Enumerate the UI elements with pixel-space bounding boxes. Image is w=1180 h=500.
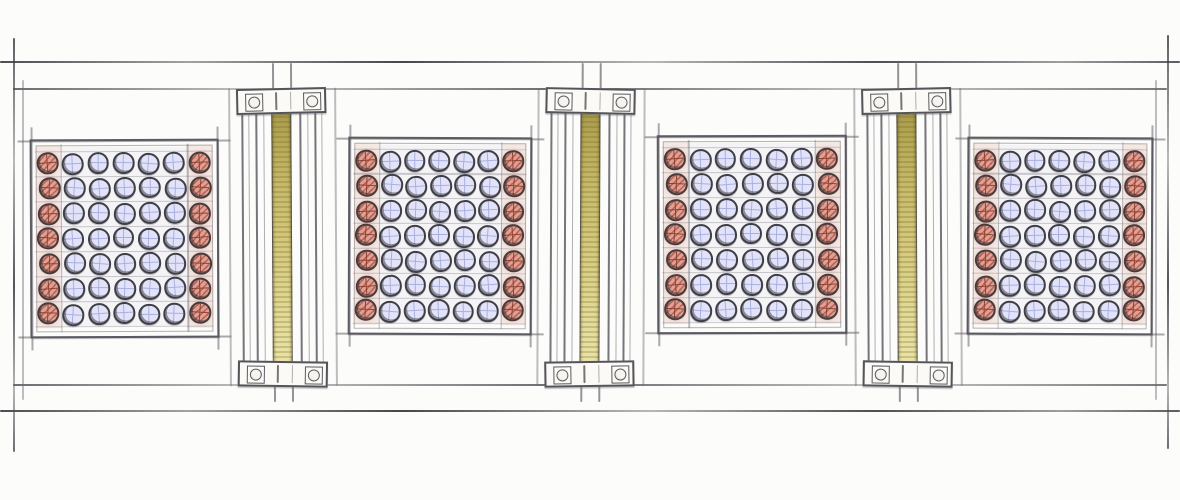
- elevation-sketch: [0, 0, 1180, 500]
- porthole-blue: [1075, 175, 1097, 197]
- porthole-blue: [792, 174, 814, 196]
- plate-center-line: [917, 365, 919, 383]
- porthole-blue: [766, 299, 788, 321]
- flute-line: [615, 96, 618, 381]
- porthole-blue: [690, 199, 712, 221]
- flute-line: [241, 96, 244, 381]
- brass-strip: [271, 100, 293, 378]
- flute-line: [629, 96, 632, 381]
- porthole-blue: [715, 197, 737, 219]
- porthole-red: [664, 222, 687, 245]
- panel-3: [657, 135, 848, 334]
- column-stub-line: [290, 63, 292, 91]
- porthole-red: [665, 173, 687, 195]
- plate-center-line: [277, 365, 279, 383]
- flute-line: [888, 96, 891, 381]
- porthole-blue: [428, 299, 450, 321]
- flute-line: [924, 96, 927, 381]
- porthole-blue: [114, 252, 137, 275]
- porthole-blue: [138, 277, 161, 300]
- porthole-blue: [1099, 251, 1121, 273]
- flute-line: [549, 96, 552, 381]
- porthole-red: [817, 172, 840, 195]
- column-stub-line: [292, 385, 294, 402]
- plate-center-line: [275, 92, 277, 110]
- frame-overshoot-top: [645, 136, 859, 138]
- porthole-blue: [63, 176, 86, 199]
- flute-line: [321, 96, 324, 381]
- frame-overshoot-left: [968, 125, 970, 347]
- column-stub-line: [897, 63, 899, 91]
- porthole-blue: [998, 300, 1021, 323]
- porthole-red: [974, 149, 997, 172]
- frame-overshoot-bottom: [18, 336, 231, 338]
- column-1: [221, 58, 343, 409]
- porthole-red: [355, 275, 378, 298]
- panel-1: [30, 139, 220, 339]
- porthole-red: [1123, 276, 1145, 298]
- rivet-plate: [303, 92, 321, 110]
- porthole-blue: [1073, 301, 1095, 323]
- porthole-blue: [1098, 199, 1120, 221]
- porthole-blue: [138, 303, 160, 325]
- porthole-red: [975, 174, 997, 196]
- porthole-red: [818, 248, 840, 270]
- porthole-blue: [429, 249, 452, 272]
- rivet-plate: [872, 365, 890, 383]
- porthole-blue: [1023, 299, 1046, 322]
- porthole-blue: [139, 177, 161, 199]
- porthole-blue: [428, 200, 451, 223]
- frame-overshoot-left: [349, 125, 351, 347]
- porthole-blue: [138, 228, 160, 250]
- bay-edge-line: [959, 88, 963, 386]
- rivet-plate: [612, 93, 630, 111]
- porthole-blue: [791, 197, 813, 219]
- plate-center-line: [584, 92, 586, 110]
- flute-line: [932, 96, 935, 381]
- porthole-blue: [452, 225, 474, 247]
- rivet-circle: [873, 96, 886, 109]
- porthole-blue: [1049, 249, 1072, 272]
- cap-plate: [545, 87, 636, 115]
- porthole-red: [189, 203, 211, 225]
- column-stub-line: [917, 385, 919, 402]
- porthole-red: [816, 147, 838, 169]
- bay-edge-line: [536, 88, 539, 386]
- porthole-red: [1123, 201, 1145, 223]
- porthole-red: [37, 203, 59, 225]
- porthole-blue: [114, 177, 136, 199]
- porthole-blue: [689, 299, 712, 322]
- column-stub-line: [274, 385, 276, 402]
- porthole-blue: [1073, 274, 1096, 297]
- porthole-blue: [741, 274, 763, 296]
- porthole-blue: [88, 177, 111, 200]
- flute-line: [622, 96, 625, 381]
- porthole-blue: [1024, 250, 1047, 273]
- frame-overshoot-bottom: [955, 333, 1165, 335]
- frame-overshoot-top: [18, 140, 231, 142]
- porthole-red: [354, 149, 377, 172]
- porthole-blue: [767, 247, 789, 269]
- column-stub-line: [272, 63, 274, 91]
- rivet-plate: [611, 365, 629, 383]
- plate-center-line: [292, 365, 294, 383]
- bay-edge-line: [334, 88, 338, 386]
- column-stub-line: [600, 63, 602, 91]
- porthole-blue: [1073, 225, 1095, 247]
- porthole-blue: [477, 300, 499, 322]
- porthole-red: [503, 250, 525, 272]
- porthole-blue: [87, 302, 110, 325]
- panel-2: [348, 137, 533, 336]
- frame-overshoot-left: [658, 123, 660, 346]
- flute-line: [607, 96, 610, 381]
- porthole-blue: [453, 199, 476, 222]
- porthole-blue: [380, 249, 402, 271]
- plate-center-line: [902, 365, 904, 383]
- porthole-blue: [1048, 299, 1070, 321]
- porthole-red: [503, 201, 525, 223]
- rivet-plate: [245, 93, 263, 111]
- porthole-blue: [113, 227, 135, 249]
- porthole-red: [974, 275, 997, 298]
- porthole-red: [1123, 150, 1145, 172]
- flute-line: [873, 96, 876, 381]
- rivet-plate: [553, 366, 571, 384]
- porthole-red: [973, 298, 995, 320]
- porthole-blue: [1023, 225, 1045, 247]
- flute-line: [563, 96, 566, 381]
- rivet-circle: [249, 368, 262, 381]
- porthole-blue: [379, 150, 401, 172]
- porthole-blue: [163, 227, 186, 250]
- porthole-blue: [404, 150, 426, 172]
- frame-overshoot-bottom: [645, 332, 859, 334]
- frame-overshoot-bottom: [336, 333, 544, 335]
- right-inner-line: [1155, 80, 1157, 400]
- porthole-red: [1122, 299, 1145, 322]
- porthole-red: [1124, 250, 1146, 272]
- left-inner-line: [22, 80, 24, 400]
- porthole-blue: [479, 251, 501, 273]
- porthole-blue: [452, 150, 475, 173]
- plate-center-line: [583, 365, 585, 383]
- porthole-blue: [765, 148, 788, 171]
- porthole-blue: [479, 176, 501, 198]
- porthole-blue: [113, 278, 135, 300]
- porthole-blue: [139, 251, 161, 273]
- column-2: [529, 58, 651, 409]
- bay-edge-line: [228, 88, 232, 386]
- porthole-red: [354, 299, 376, 321]
- porthole-blue: [740, 298, 762, 320]
- porthole-blue: [715, 148, 737, 170]
- porthole-red: [502, 149, 524, 171]
- porthole-red: [188, 226, 211, 249]
- porthole-red: [37, 302, 59, 324]
- rivet-circle: [306, 95, 319, 108]
- porthole-blue: [380, 274, 402, 296]
- porthole-blue: [163, 302, 185, 324]
- porthole-blue: [766, 273, 789, 296]
- porthole-blue: [741, 248, 764, 271]
- porthole-blue: [716, 273, 738, 295]
- rivet-circle: [614, 368, 627, 381]
- column-stub-line: [915, 63, 917, 91]
- plate-center-line: [915, 92, 917, 110]
- rivet-circle: [931, 95, 944, 108]
- flute-line: [255, 96, 258, 381]
- flute-line: [263, 96, 266, 381]
- porthole-blue: [715, 223, 737, 245]
- cap-plate: [236, 87, 327, 115]
- porthole-blue: [428, 224, 450, 246]
- rivet-circle: [556, 369, 569, 382]
- porthole-blue: [64, 252, 86, 274]
- flute-line: [866, 96, 869, 381]
- porthole-blue: [690, 172, 713, 195]
- porthole-red: [975, 250, 997, 272]
- panel-4: [967, 137, 1154, 336]
- rivet-plate: [554, 92, 572, 110]
- porthole-red: [39, 253, 61, 275]
- porthole-red: [36, 226, 59, 249]
- porthole-blue: [740, 147, 762, 169]
- cap-plate: [861, 87, 952, 115]
- porthole-red: [188, 301, 211, 324]
- flute-line: [880, 96, 883, 381]
- base-plate: [544, 360, 634, 387]
- rivet-plate: [305, 366, 323, 384]
- porthole-blue: [88, 277, 110, 299]
- porthole-blue: [689, 149, 711, 171]
- porthole-blue: [765, 224, 787, 246]
- base-plate: [863, 360, 953, 387]
- porthole-blue: [380, 200, 402, 222]
- porthole-blue: [63, 203, 85, 225]
- flute-line: [248, 96, 251, 381]
- rivet-plate: [928, 92, 946, 110]
- porthole-blue: [428, 275, 450, 297]
- flute-line: [299, 96, 302, 381]
- porthole-red: [664, 199, 686, 221]
- porthole-blue: [1097, 300, 1119, 322]
- frame-overshoot-right: [1151, 125, 1153, 347]
- porthole-blue: [999, 150, 1021, 172]
- rivet-circle: [307, 369, 320, 382]
- porthole-blue: [767, 173, 789, 195]
- porthole-blue: [404, 250, 427, 273]
- brass-strip: [896, 100, 917, 378]
- porthole-blue: [165, 253, 187, 275]
- porthole-blue: [741, 173, 763, 195]
- porthole-blue: [405, 175, 428, 198]
- rivet-plate: [870, 93, 888, 111]
- rivet-circle: [557, 95, 570, 108]
- porthole-blue: [112, 151, 134, 173]
- column-stub-line: [580, 385, 582, 402]
- porthole-blue: [714, 298, 737, 321]
- porthole-blue: [428, 149, 450, 171]
- porthole-red: [501, 224, 524, 247]
- porthole-red: [502, 276, 524, 298]
- porthole-blue: [790, 223, 813, 246]
- porthole-red: [666, 249, 688, 271]
- porthole-blue: [1074, 249, 1096, 271]
- plate-center-line: [290, 92, 292, 110]
- porthole-blue: [478, 199, 500, 221]
- porthole-blue: [137, 152, 160, 175]
- porthole-blue: [1000, 249, 1022, 271]
- bottom-rail-line: [0, 410, 1180, 412]
- porthole-red: [1122, 224, 1145, 247]
- porthole-red: [188, 151, 210, 173]
- porthole-red: [38, 177, 60, 199]
- porthole-blue: [113, 202, 136, 225]
- frame-overshoot-left: [31, 127, 33, 350]
- porthole-blue: [1048, 200, 1071, 223]
- porthole-blue: [87, 227, 109, 249]
- flute-line: [571, 96, 574, 381]
- porthole-blue: [87, 152, 109, 174]
- porthole-blue: [88, 202, 110, 224]
- porthole-blue: [454, 175, 476, 197]
- porthole-red: [356, 250, 378, 272]
- porthole-blue: [1000, 200, 1022, 222]
- porthole-red: [817, 274, 839, 296]
- plate-center-line: [598, 365, 600, 383]
- porthole-red: [354, 223, 377, 246]
- porthole-blue: [791, 272, 814, 295]
- porthole-blue: [404, 199, 426, 221]
- porthole-blue: [163, 276, 186, 299]
- porthole-blue: [691, 248, 713, 270]
- base-plate: [238, 360, 328, 387]
- porthole-blue: [1048, 224, 1070, 246]
- plate-center-line: [900, 92, 902, 110]
- porthole-red: [501, 299, 524, 322]
- frame-overshoot-top: [336, 138, 544, 140]
- porthole-blue: [1099, 176, 1121, 198]
- porthole-blue: [453, 274, 476, 297]
- porthole-blue: [404, 274, 426, 296]
- porthole-blue: [403, 225, 425, 247]
- porthole-red: [36, 151, 59, 174]
- porthole-blue: [430, 175, 452, 197]
- porthole-blue: [1048, 149, 1070, 171]
- flute-line: [946, 96, 949, 381]
- rivet-plate: [247, 365, 265, 383]
- porthole-blue: [62, 153, 84, 175]
- porthole-blue: [113, 302, 135, 324]
- porthole-blue: [791, 298, 813, 320]
- rivet-circle: [874, 368, 887, 381]
- porthole-blue: [1024, 150, 1046, 172]
- flute-line: [939, 96, 942, 381]
- frame-overshoot-right: [217, 127, 219, 350]
- porthole-blue: [164, 178, 186, 200]
- porthole-red: [190, 252, 212, 274]
- left-edge-line: [13, 38, 15, 452]
- rivet-circle: [248, 96, 261, 109]
- porthole-red: [663, 147, 686, 170]
- porthole-blue: [1024, 274, 1046, 296]
- porthole-red: [974, 200, 996, 222]
- porthole-blue: [793, 249, 815, 271]
- porthole-blue: [1048, 275, 1070, 297]
- bay-edge-line: [642, 88, 645, 386]
- porthole-blue: [1098, 274, 1121, 297]
- porthole-blue: [453, 301, 475, 323]
- bay-edge-line: [853, 88, 857, 386]
- rivet-plate: [930, 366, 948, 384]
- porthole-blue: [740, 198, 763, 221]
- porthole-red: [664, 298, 686, 320]
- porthole-blue: [998, 225, 1021, 248]
- column-stub-line: [899, 385, 901, 402]
- flute-line: [556, 96, 559, 381]
- porthole-blue: [1024, 175, 1047, 198]
- porthole-blue: [379, 225, 402, 248]
- porthole-blue: [63, 278, 85, 300]
- rivet-circle: [932, 369, 945, 382]
- column-3: [846, 58, 968, 409]
- plate-center-line: [599, 92, 601, 110]
- porthole-blue: [403, 299, 426, 322]
- porthole-red: [355, 200, 377, 222]
- porthole-red: [817, 199, 839, 221]
- frame-overshoot-top: [955, 138, 1165, 140]
- porthole-blue: [1073, 200, 1096, 223]
- porthole-blue: [1050, 175, 1072, 197]
- flute-line: [307, 96, 310, 381]
- porthole-blue: [1098, 150, 1121, 173]
- porthole-blue: [690, 273, 712, 295]
- column-stub-line: [582, 63, 584, 91]
- porthole-red: [356, 174, 378, 196]
- porthole-blue: [163, 201, 185, 223]
- porthole-blue: [454, 249, 476, 271]
- rivet-circle: [615, 96, 628, 109]
- right-edge-line: [1167, 35, 1169, 449]
- porthole-blue: [1073, 150, 1096, 173]
- porthole-blue: [999, 274, 1021, 296]
- brass-strip: [579, 100, 600, 378]
- column-stub-line: [598, 385, 600, 402]
- porthole-blue: [1097, 224, 1120, 247]
- porthole-blue: [740, 223, 762, 245]
- flute-line: [314, 96, 317, 381]
